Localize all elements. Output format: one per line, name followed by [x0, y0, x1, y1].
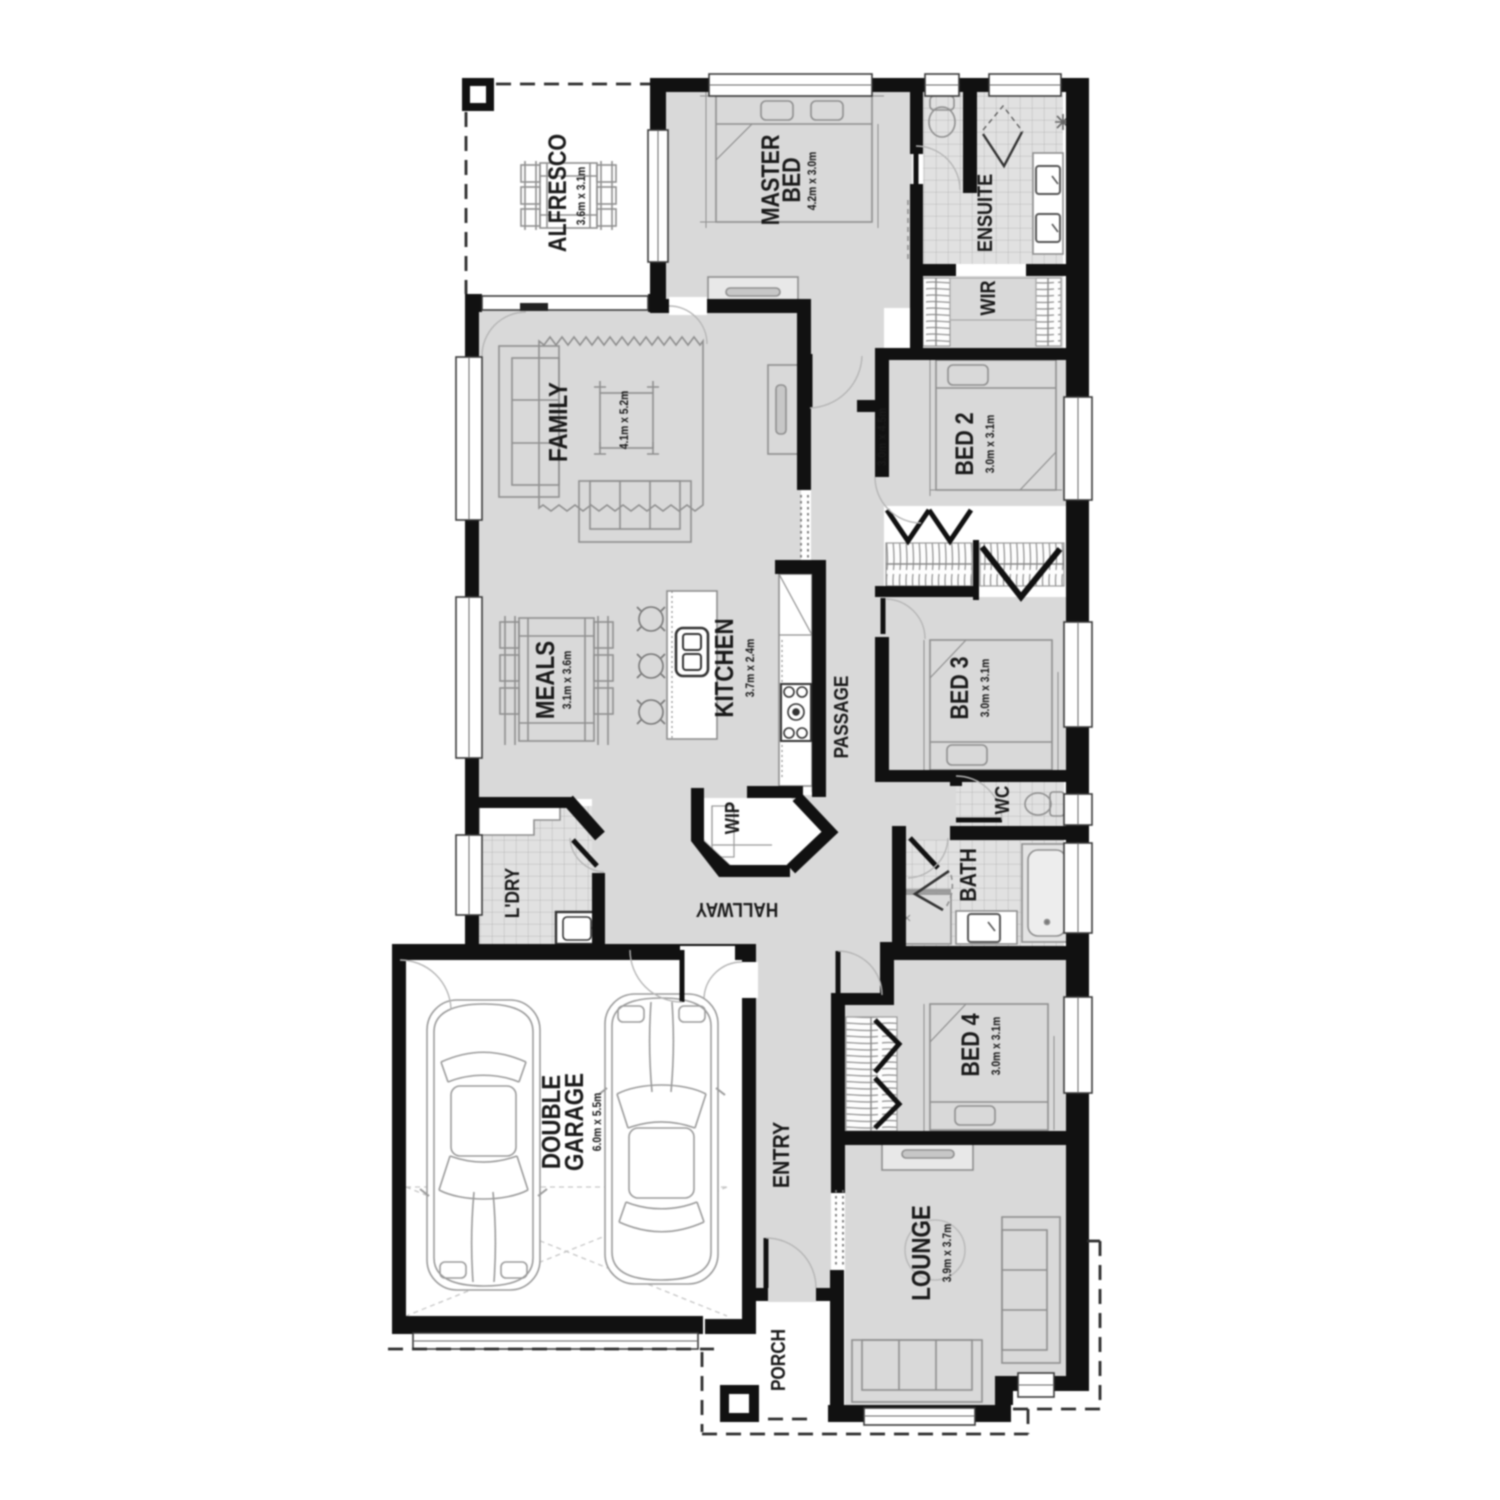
svg-text:6.0m x 5.5m: 6.0m x 5.5m: [591, 1093, 604, 1152]
svg-text:WC: WC: [991, 786, 1014, 815]
svg-text:FAMILY: FAMILY: [544, 382, 573, 462]
svg-text:BED 4: BED 4: [956, 1013, 984, 1076]
svg-text:HALLWAY: HALLWAY: [695, 899, 778, 922]
svg-text:3.9m x 3.7m: 3.9m x 3.7m: [941, 1224, 954, 1283]
svg-text:3.0m x 3.1m: 3.0m x 3.1m: [984, 415, 997, 474]
svg-text:3.0m x 3.1m: 3.0m x 3.1m: [979, 659, 992, 718]
svg-text:PORCH: PORCH: [767, 1329, 790, 1391]
svg-text:ENSUITE: ENSUITE: [974, 174, 998, 252]
svg-text:BED 3: BED 3: [945, 656, 973, 719]
svg-text:3.1m x 3.6m: 3.1m x 3.6m: [561, 651, 574, 710]
svg-text:ENTRY: ENTRY: [769, 1122, 795, 1188]
svg-text:BED: BED: [777, 157, 805, 202]
svg-text:BED 2: BED 2: [950, 412, 978, 475]
svg-text:3.7m x 2.4m: 3.7m x 2.4m: [744, 639, 757, 698]
svg-text:PASSAGE: PASSAGE: [830, 676, 853, 759]
svg-text:WIP: WIP: [721, 802, 744, 834]
svg-text:BATH: BATH: [956, 848, 982, 901]
svg-text:3.6m x 3.1m: 3.6m x 3.1m: [575, 167, 588, 226]
svg-text:LOUNGE: LOUNGE: [907, 1205, 936, 1301]
svg-text:KITCHEN: KITCHEN: [710, 618, 739, 717]
svg-text:4.2m x 3.0m: 4.2m x 3.0m: [806, 152, 819, 211]
svg-text:L'DRY: L'DRY: [501, 867, 524, 918]
svg-text:MEALS: MEALS: [531, 641, 560, 719]
svg-text:3.0m x 3.1m: 3.0m x 3.1m: [990, 1017, 1003, 1076]
svg-text:GARAGE: GARAGE: [560, 1073, 589, 1171]
svg-text:ALFRESCO: ALFRESCO: [543, 134, 571, 252]
svg-text:3.0m x 4.5m: 3.0m x 4.5m: [876, 408, 889, 467]
svg-text:4.1m x 5.2m: 4.1m x 5.2m: [618, 391, 631, 450]
svg-text:WIR: WIR: [977, 280, 1001, 315]
